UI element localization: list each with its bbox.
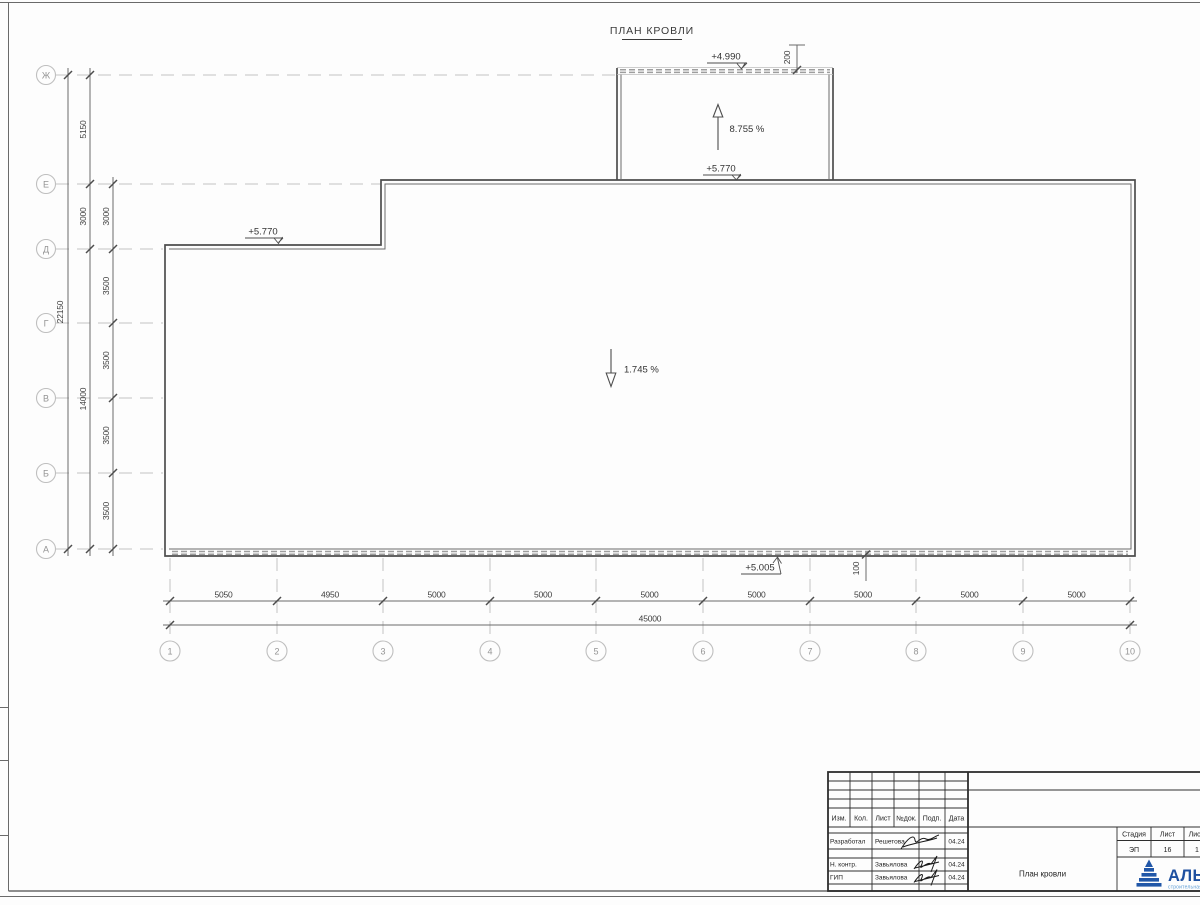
dim-left-outer-0: 5150 <box>78 120 88 139</box>
tb-name-2: Завьялова <box>875 875 908 882</box>
tb-header-kol: Кол. <box>854 816 868 823</box>
axis-row-3: Г <box>44 319 49 329</box>
axis-col-8: 9 <box>1020 647 1025 657</box>
tb-sheet-header: Лист <box>1160 832 1176 839</box>
tb-stage-value: ЭП <box>1129 847 1139 854</box>
elevation-marks: +4.990 +5.770 +5.770 +5.005 <box>243 50 784 574</box>
logo-company-name: АЛЬЯНС <box>1168 867 1200 885</box>
tb-header-izm: Изм. <box>832 816 847 823</box>
axis-row-5: Б <box>43 469 49 479</box>
tb-stage-header: Стадия <box>1122 832 1146 839</box>
tb-doc-name: План кровли <box>1019 870 1066 879</box>
tb-name-1: Завьялова <box>875 862 908 869</box>
axis-col-7: 8 <box>913 647 918 657</box>
tb-date-1: 04.24 <box>948 862 965 869</box>
dim-left-outer-1: 3000 <box>78 207 88 226</box>
dim-bottom-2: 5000 <box>427 590 446 600</box>
drawing-frame <box>0 3 1200 897</box>
offset-dimensions: 200 100 <box>782 45 870 581</box>
signature-developer <box>901 835 939 849</box>
dim-offset-bottom: 100 <box>851 561 861 575</box>
elevation-upper-top: +4.990 <box>705 50 747 69</box>
axis-row-1: Е <box>43 180 49 190</box>
dim-bottom-total: 45000 <box>639 614 662 624</box>
tb-header-ndok: №док. <box>896 816 917 823</box>
company-logo: АЛЬЯНС строительная компания <box>1137 860 1200 891</box>
elev-upper-top-label: +4.990 <box>711 52 740 63</box>
dim-bottom-6: 5000 <box>854 590 873 600</box>
page-title: ПЛАН КРОВЛИ <box>610 25 694 37</box>
tb-header-podp: Подп. <box>923 816 942 823</box>
dimensions-bottom: 5050 4950 5000 5000 5000 5000 5000 5000 … <box>163 590 1137 630</box>
tb-role-1: Н. контр. <box>830 862 857 869</box>
roof-parapet-dashes-bottom <box>172 552 1128 555</box>
logo-pyramid-icon <box>1137 860 1162 887</box>
slope-arrows: 8.755 % 1.745 % <box>606 105 765 387</box>
axis-col-6: 7 <box>807 647 812 657</box>
dim-bottom-7: 5000 <box>960 590 979 600</box>
dim-bottom-3: 5000 <box>534 590 553 600</box>
tb-sheet-value: 16 <box>1164 847 1172 854</box>
tb-header-data: Дата <box>949 816 965 823</box>
dimensions-left: 22150 5150 3000 14000 3000 3500 3500 350… <box>55 68 117 556</box>
axis-row-6: А <box>43 545 49 555</box>
axis-col-3: 4 <box>487 647 492 657</box>
tb-date-0: 04.24 <box>948 839 965 846</box>
axis-col-0: 1 <box>167 647 172 657</box>
elev-upper-bottom-label: +5.770 <box>706 164 735 175</box>
elevation-upper-bottom: +5.770 <box>701 162 742 180</box>
dim-bottom-0: 5050 <box>214 590 233 600</box>
axis-col-2: 3 <box>380 647 385 657</box>
tb-date-2: 04.24 <box>948 875 965 882</box>
dim-left-inner-3: 3500 <box>101 426 111 445</box>
tb-header-list: Лист <box>875 816 891 823</box>
elevation-bottom: +5.005 <box>740 557 784 574</box>
tb-name-0: Решетова <box>875 839 905 846</box>
slope-arrow-main: 1.745 % <box>606 349 659 387</box>
slope-arrow-upper: 8.755 % <box>713 105 765 151</box>
dim-bottom-1: 4950 <box>321 590 340 600</box>
dim-bottom-5: 5000 <box>747 590 766 600</box>
drawing-sheet: ПЛАН КРОВЛИ <box>0 0 1200 905</box>
title-block: Изм. Кол. Лист №док. Подп. Дата Разработ… <box>828 772 1200 891</box>
axis-circles: Ж Е Д Г В Б А 1 2 3 4 5 6 7 8 9 10 <box>37 66 1141 662</box>
axis-col-4: 5 <box>593 647 598 657</box>
axis-row-4: В <box>43 394 49 404</box>
dim-left-inner-4: 3500 <box>101 501 111 520</box>
dim-left-outer-2: 14000 <box>78 387 88 410</box>
dim-bottom-4: 5000 <box>640 590 659 600</box>
slope-main-label: 1.745 % <box>624 365 659 376</box>
dim-bottom-8: 5000 <box>1067 590 1086 600</box>
tb-sheets-header: Листов <box>1189 832 1200 839</box>
slope-upper-label: 8.755 % <box>730 124 765 135</box>
tb-sheets-value: 1 <box>1195 847 1199 854</box>
axis-row-2: Д <box>43 245 49 255</box>
axis-row-0: Ж <box>42 71 51 81</box>
signature-gip <box>914 870 939 886</box>
elev-left-label: +5.770 <box>248 227 277 238</box>
drawing-title: ПЛАН КРОВЛИ <box>610 25 694 40</box>
elevation-left: +5.770 <box>243 225 284 244</box>
tb-role-0: Разработал <box>830 838 866 846</box>
tb-role-2: ГИП <box>830 875 843 882</box>
dim-left-total: 22150 <box>55 300 65 323</box>
dim-left-inner-0: 3000 <box>101 207 111 226</box>
dim-left-inner-1: 3500 <box>101 276 111 295</box>
axis-col-1: 2 <box>274 647 279 657</box>
dim-left-inner-2: 3500 <box>101 351 111 370</box>
roof-parapet-dashes-top <box>620 70 830 73</box>
elev-bottom-label: +5.005 <box>745 563 774 574</box>
dim-offset-top: 200 <box>782 50 792 64</box>
axis-col-5: 6 <box>700 647 705 657</box>
axis-col-9: 10 <box>1125 647 1135 657</box>
logo-company-tagline: строительная компания <box>1168 885 1200 891</box>
